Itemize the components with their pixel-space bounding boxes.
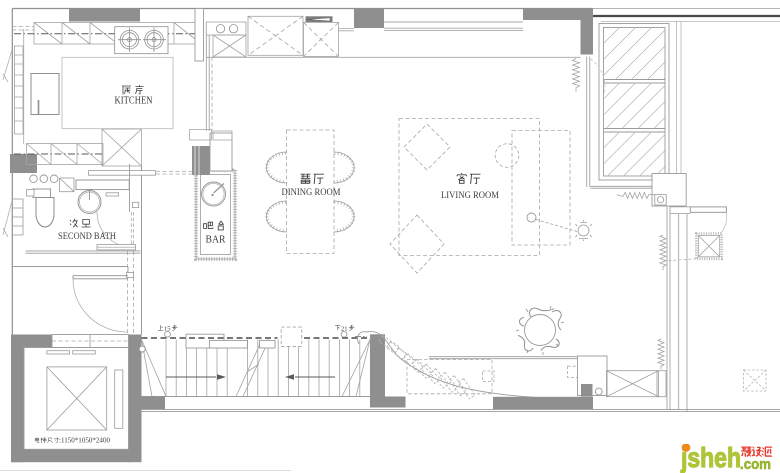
svg-text:21: 21 bbox=[341, 326, 348, 333]
svg-text:LIVING ROOM: LIVING ROOM bbox=[441, 191, 500, 201]
svg-text:KITCHEN: KITCHEN bbox=[115, 96, 153, 107]
svg-text:15: 15 bbox=[164, 326, 171, 333]
svg-text:BAR: BAR bbox=[206, 235, 226, 246]
svg-text:.com: .com bbox=[740, 456, 771, 473]
svg-text::1150*1050*2400: :1150*1050*2400 bbox=[59, 438, 111, 445]
svg-text:DINING ROOM: DINING ROOM bbox=[282, 188, 341, 198]
